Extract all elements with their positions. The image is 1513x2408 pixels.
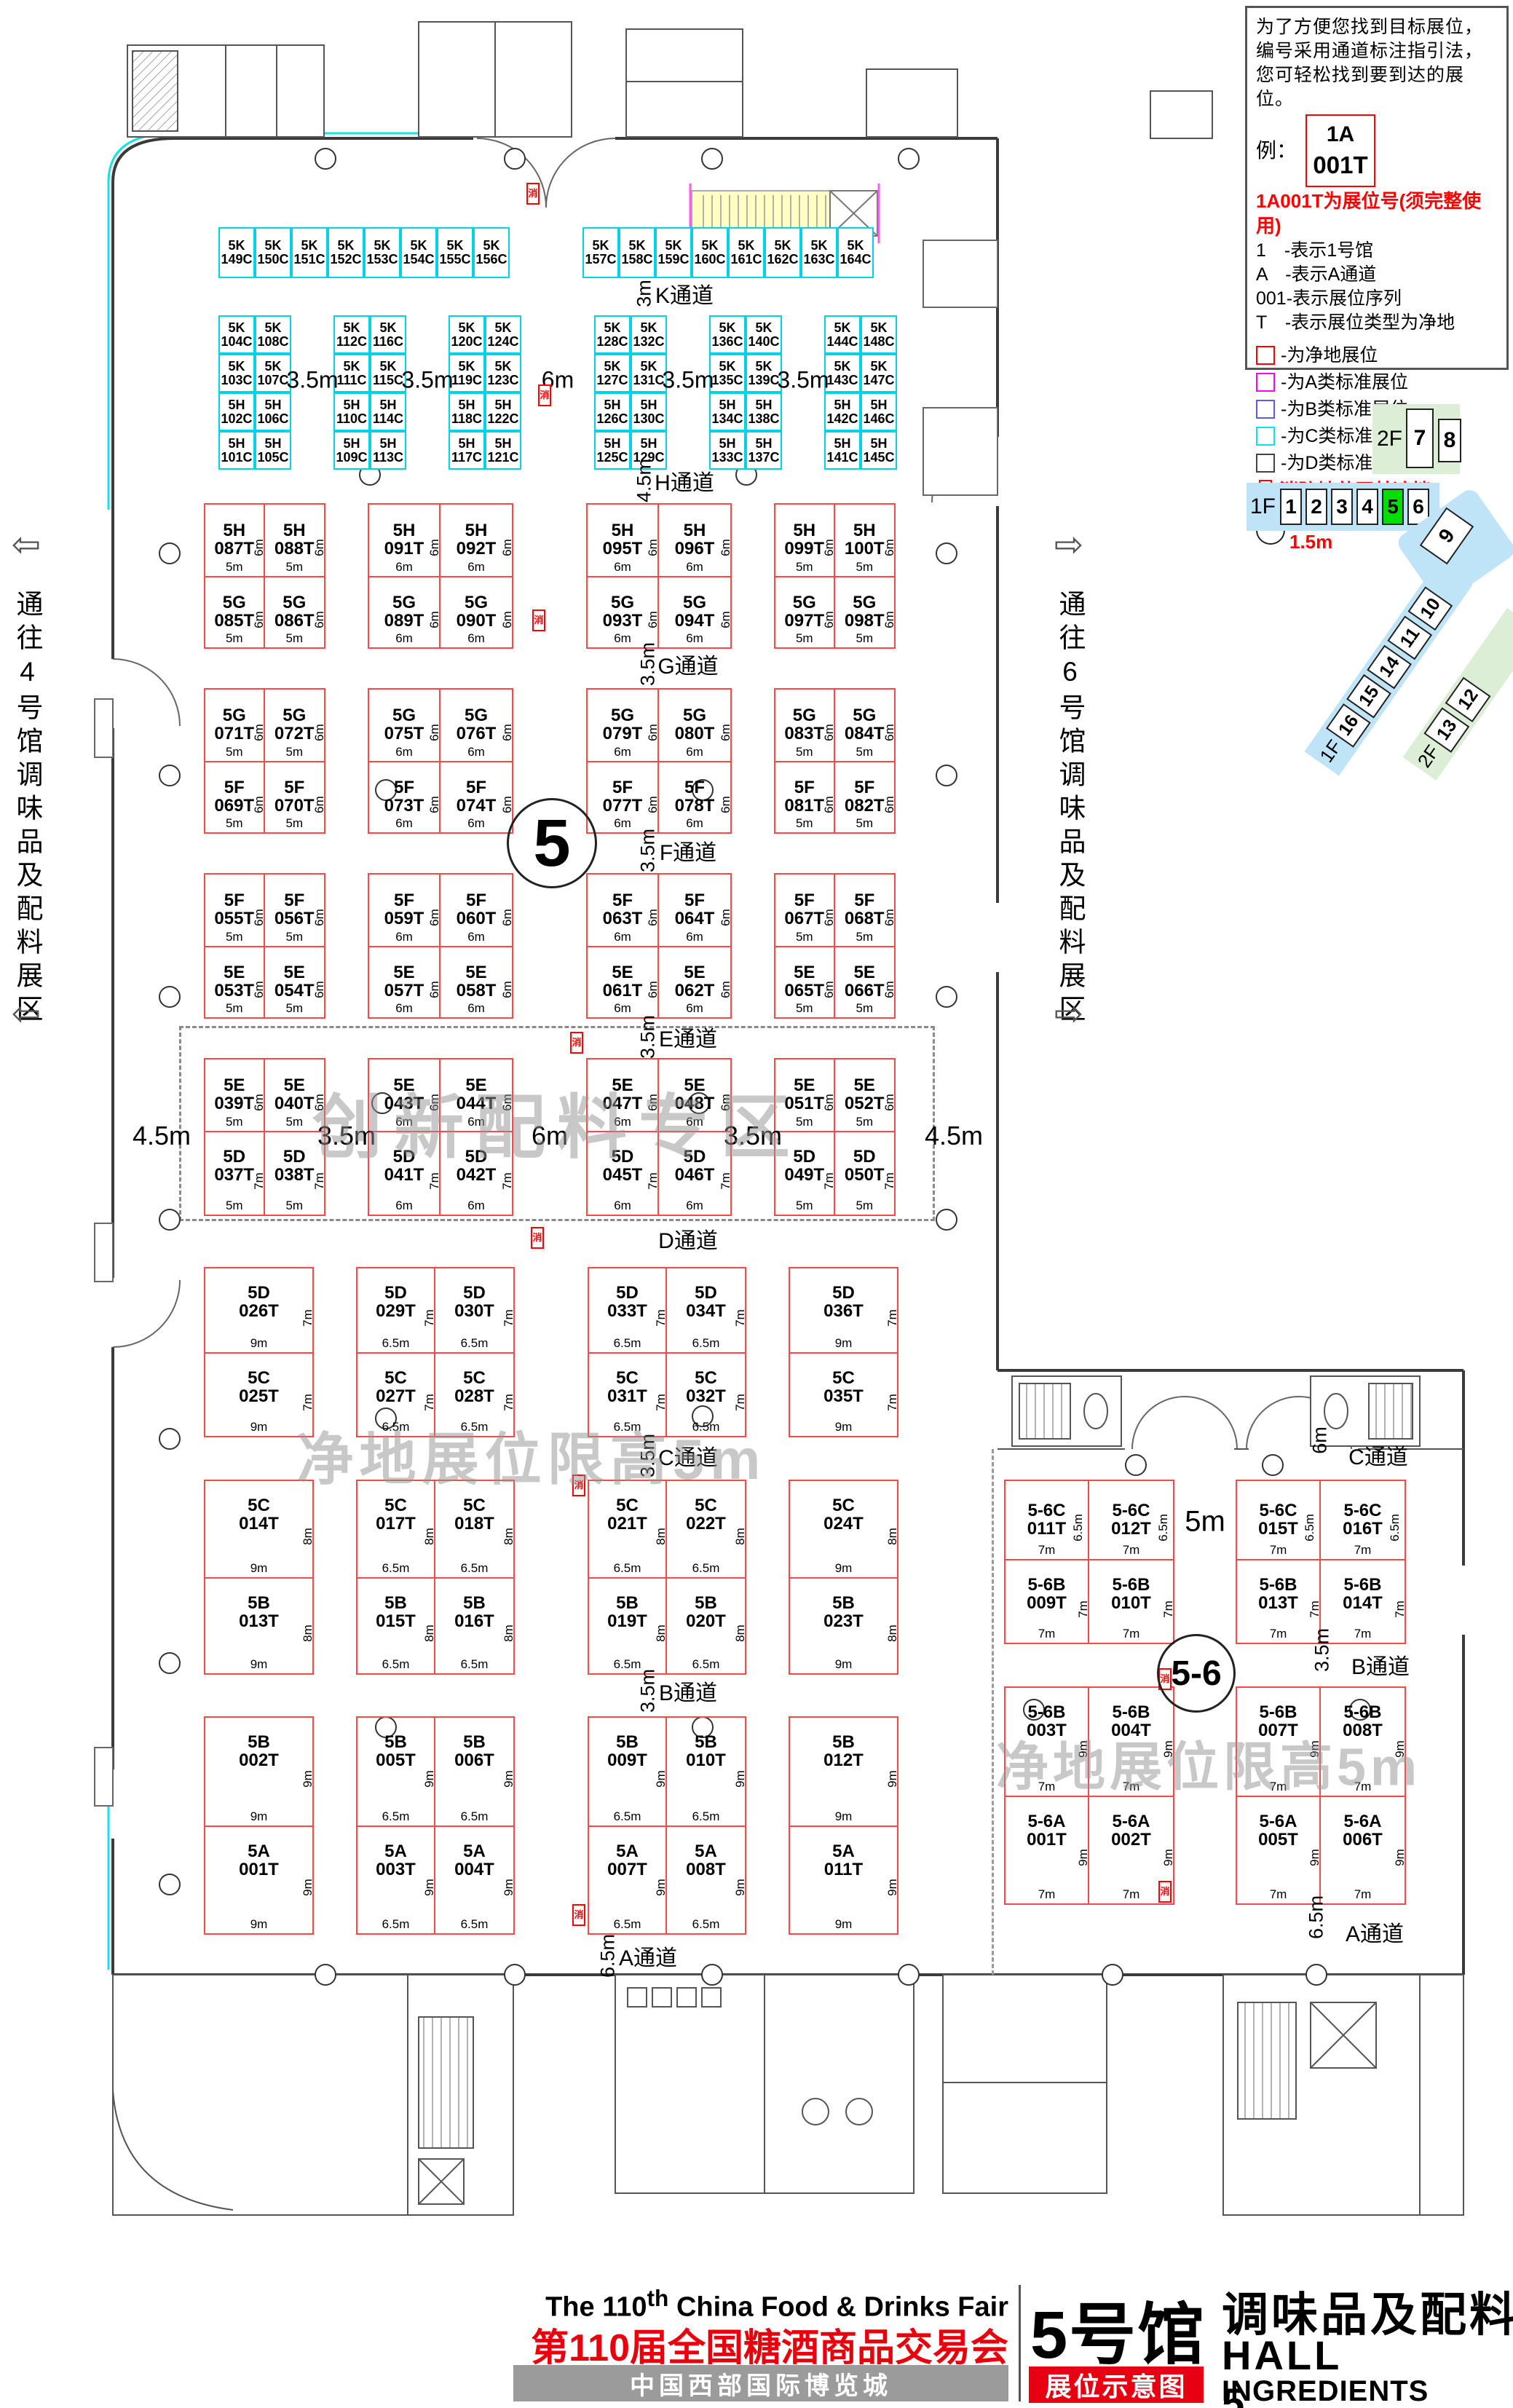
booth: 5F059T6m6m: [369, 875, 441, 947]
booth: 5G085T5m6m: [205, 577, 265, 647]
venue-bar: 中国西部国际博览城: [513, 2365, 1008, 2401]
booth-label: 5-6B014T: [1343, 1576, 1383, 1612]
booth-height-dim: 6.5m: [1303, 1514, 1317, 1541]
booth: 5D036T9m7m: [790, 1268, 897, 1354]
booth-label: 5A003T: [376, 1843, 416, 1879]
booth-number: 149C: [221, 253, 252, 267]
booth-height-dim: 6m: [882, 981, 897, 998]
booth-width-dim: 6m: [369, 1199, 439, 1213]
arrow-to-hall6-bottom-icon: ⇨: [1054, 993, 1083, 1034]
pillar-icon: [315, 1964, 336, 1986]
booth-label: 5H091T: [384, 522, 424, 558]
navigator-1f-strip-label: 1F: [1315, 735, 1346, 767]
booth: 5H095T6m6m: [588, 505, 659, 577]
booth-hall-code: 5K: [264, 239, 281, 253]
booth: 5F078T6m6m: [659, 762, 730, 832]
fire-hydrant-icon: 消: [526, 183, 540, 205]
pillar-icon: [1102, 1964, 1123, 1986]
booth-hall-code: 5K: [228, 239, 245, 253]
booth-number: 148C: [863, 335, 894, 349]
pillar-icon: [936, 986, 957, 1008]
booth-number: 127C: [596, 374, 628, 387]
booth-label: 5D033T: [607, 1284, 647, 1320]
booth: 5K153C: [364, 227, 400, 278]
booth-label: 5D037T: [214, 1148, 254, 1184]
booth-label: 5H088T: [274, 522, 315, 558]
booth-width-dim: 6.5m: [435, 1657, 513, 1672]
booth-height-dim: 6m: [312, 796, 327, 813]
aisle-label: C通道: [1348, 1439, 1408, 1471]
booth-label: 5-6C011T: [1027, 1502, 1066, 1538]
booth-hall-code: 5K: [665, 239, 682, 253]
booth-number: 150C: [257, 253, 288, 267]
booth-label: 5F070T: [274, 779, 315, 815]
booth-hall-code: 5K: [337, 239, 354, 253]
booth-hall-code: 5K: [604, 321, 620, 335]
booth-hall-code: 5K: [343, 360, 360, 374]
aisle-dim-label: 4.5m: [633, 459, 656, 502]
booth: 5D029T6.5m7m: [357, 1268, 435, 1354]
booth-height-dim: 6m: [882, 724, 897, 741]
booth: 5F064T6m6m: [659, 875, 730, 947]
booth-label: 5-6A001T: [1027, 1813, 1067, 1849]
booth: 5G071T5m6m: [205, 690, 265, 762]
booth-label: 5B023T: [823, 1595, 864, 1630]
booth-width-dim: 6.5m: [357, 1657, 434, 1672]
booth-number: 102C: [221, 412, 252, 426]
booth-label: 5G080T: [675, 707, 715, 743]
pillar-icon: [1125, 1454, 1147, 1476]
booth-width-dim: 5m: [775, 1199, 834, 1213]
booth-label: 5C017T: [376, 1497, 416, 1533]
booth-number: 156C: [475, 253, 507, 267]
booth-width-dim: 6.5m: [589, 1336, 665, 1351]
booth-number: 157C: [585, 253, 616, 267]
booth-hall-code: 5H: [719, 437, 735, 451]
booth-label: 5-6B010T: [1111, 1576, 1151, 1612]
booth: 5H137C: [746, 431, 782, 470]
aisle-label: H通道: [655, 465, 714, 497]
hall-navigator: 2F781F12345691F16151411102F1312: [1238, 397, 1513, 805]
booth-hall-code: 5K: [379, 321, 396, 335]
booth-label: 5E039T: [214, 1077, 254, 1113]
booth-height-dim: 6.5m: [1156, 1514, 1171, 1541]
booth: 5E039T5m6m: [205, 1059, 265, 1132]
booth: 5H091T6m6m: [369, 505, 441, 577]
booth: 5H130C: [631, 392, 667, 431]
aisle-dim-label: 3.5m: [637, 1015, 660, 1059]
booth-hall-code: 5H: [719, 398, 735, 412]
booth-label: 5B013T: [239, 1595, 279, 1630]
booth-width-dim: 5m: [205, 1115, 264, 1129]
booth-width-dim: 6m: [369, 930, 439, 944]
booth: 5-6C012T7m6.5m: [1089, 1481, 1173, 1560]
booth-width-dim: 6.5m: [435, 1561, 513, 1576]
booth-width-dim: 5m: [775, 560, 834, 575]
booth-height-dim: 6m: [882, 796, 897, 813]
aisle-dim-label: 6m: [1309, 1426, 1332, 1454]
booth-hall-code: 5K: [301, 239, 317, 253]
booth-hall-code: 5K: [483, 239, 499, 253]
fire-hydrant-icon: 消: [570, 1032, 583, 1054]
booth-label: 5E057T: [384, 964, 424, 1000]
booth-height-dim: 8m: [885, 1528, 900, 1545]
booth-label: 5F064T: [675, 892, 715, 928]
booth-width-dim: 5m: [835, 1115, 895, 1129]
booth-group: 5G075T6m6m5G076T6m6m5F073T6m6m5F074T6m6m: [368, 688, 513, 834]
booth: 5E061T6m6m: [588, 947, 659, 1017]
booth: 5H113C: [370, 431, 406, 470]
booth-label: 5G085T: [214, 594, 254, 630]
booth: 5F081T5m6m: [775, 762, 835, 832]
booth-width-dim: 7m: [1089, 1627, 1173, 1641]
booth: 5A003T6.5m9m: [357, 1827, 435, 1933]
booth-height-dim: 8m: [301, 1625, 315, 1642]
booth-number: 105C: [257, 451, 288, 465]
booth-width-dim: 6m: [659, 560, 730, 575]
booth-width-dim: 5m: [775, 631, 834, 646]
booth-width-dim: 6m: [369, 816, 439, 831]
booth-label: 5-6C016T: [1343, 1502, 1383, 1538]
booth: 5H109C: [333, 431, 370, 470]
booth-width-dim: 5m: [835, 816, 895, 831]
booth: 5D037T5m7m: [205, 1132, 265, 1215]
booth-group: 5H091T6m6m5H092T6m6m5G089T6m6m5G090T6m6m: [368, 503, 513, 649]
gap-dim-label: 3.5m: [401, 367, 453, 394]
booth: 5-6B010T7m7m: [1089, 1560, 1173, 1643]
booth-number: 135C: [711, 374, 743, 387]
booth-label: 5C018T: [454, 1497, 494, 1533]
plan-badge: 展位示意图: [1029, 2366, 1204, 2403]
booth-hall-code: 5K: [264, 321, 281, 335]
booth-width-dim: 7m: [1006, 1627, 1088, 1641]
booth: 5E062T6m6m: [659, 947, 730, 1017]
booth-label: 5D034T: [686, 1284, 726, 1320]
booth-number: 152C: [330, 253, 361, 267]
booth: 5-6A001T7m9m: [1006, 1797, 1089, 1903]
booth-label: 5H087T: [214, 522, 254, 558]
booth-label: 5D030T: [454, 1284, 494, 1320]
aisle-label: A通道: [1346, 1916, 1404, 1948]
booth: 5K148C: [861, 315, 897, 354]
example-booth-hall: 1A: [1327, 120, 1354, 149]
booth-label: 5E061T: [603, 964, 643, 1000]
booth-height-dim: 6m: [719, 909, 733, 926]
booth: 5F073T6m6m: [369, 762, 441, 832]
booth-hall-code: 5K: [870, 360, 887, 374]
booth: 5E058T6m6m: [441, 947, 512, 1017]
booth-number: 132C: [633, 335, 664, 349]
booth-label: 5B015T: [376, 1595, 416, 1630]
booth-hall-code: 5K: [774, 239, 791, 253]
booth-number: 136C: [711, 335, 743, 349]
hall-box-2: 2: [1305, 489, 1327, 525]
navigator-2f-label: 2F: [1377, 427, 1402, 451]
booth-height-dim: 9m: [1161, 1849, 1176, 1866]
booth-hall-code: 5H: [755, 398, 772, 412]
booth: 5B020T6.5m8m: [667, 1579, 745, 1673]
zone-side-dim: 4.5m: [925, 1121, 983, 1151]
booth-width-dim: 6m: [441, 560, 512, 575]
booth-label: 5-6A002T: [1111, 1813, 1151, 1849]
booth-width-dim: 5m: [835, 930, 895, 944]
booth-label: 5G093T: [603, 594, 643, 630]
booth-label: 5G090T: [457, 594, 497, 630]
booth-label: 5F060T: [457, 892, 497, 928]
booth-number: 126C: [596, 412, 628, 426]
booth-height-dim: 6m: [500, 724, 515, 741]
booth: 5E065T5m6m: [775, 947, 835, 1017]
booth-label: 5-6A005T: [1258, 1813, 1298, 1849]
booth-width-dim: 6m: [659, 745, 730, 759]
booth: 5K158C: [619, 227, 655, 278]
booth-label: 5G098T: [845, 594, 885, 630]
booth-label: 5C022T: [686, 1497, 726, 1533]
booth-hall-code: 5H: [834, 437, 850, 451]
booth-label: 5C024T: [823, 1497, 864, 1533]
booth-number: 130C: [633, 412, 664, 426]
booth: 5D030T6.5m7m: [435, 1268, 513, 1354]
pillar-icon: [701, 1964, 723, 1986]
booth-group: 5C014T9m8m5B013T9m8m: [204, 1480, 314, 1675]
booth: 5-6A006T7m9m: [1321, 1797, 1405, 1903]
booth-label: 5E054T: [274, 964, 315, 1000]
booth-hall-code: 5K: [458, 321, 475, 335]
booth-label: 5H096T: [675, 522, 715, 558]
booth-group: 5C017T6.5m8m5C018T6.5m8m5B015T6.5m8m5B01…: [356, 1480, 515, 1675]
booth: 5K104C: [218, 315, 255, 354]
booth-width-dim: 6.5m: [589, 1561, 665, 1576]
booth-label: 5E052T: [845, 1077, 885, 1113]
aisle-dim-label: 3.5m: [1311, 1628, 1334, 1672]
booth: 5K155C: [437, 227, 473, 278]
booth-group: 5B012T9m9m5A011T9m9m: [789, 1716, 898, 1935]
booth-number: 142C: [826, 412, 858, 426]
booth: 5C022T6.5m8m: [667, 1481, 745, 1579]
booth-label: 5C031T: [607, 1370, 647, 1405]
booth-label: 5A007T: [607, 1843, 647, 1879]
booth-width-dim: 6m: [659, 1001, 730, 1016]
booth: 5F060T6m6m: [441, 875, 512, 947]
booth-number: 158C: [621, 253, 652, 267]
booth-width-dim: 6m: [588, 560, 657, 575]
booth-width-dim: 6.5m: [589, 1809, 665, 1824]
booth-number: 155C: [439, 253, 470, 267]
booth: 5-6C015T7m6.5m: [1237, 1481, 1321, 1560]
booth-height-dim: 6m: [500, 796, 515, 813]
booth-width-dim: 5m: [205, 631, 264, 646]
booth-label: 5D036T: [823, 1284, 864, 1320]
booth-width-dim: 6.5m: [357, 1561, 434, 1576]
booth-number: 128C: [596, 335, 628, 349]
booth: 5G097T5m6m: [775, 577, 835, 647]
booth-number: 122C: [487, 412, 518, 426]
booth-label: 5G071T: [214, 707, 254, 743]
booth-width-dim: 6.5m: [667, 1657, 745, 1672]
booth-width-dim: 9m: [790, 1917, 897, 1932]
booth: 5C017T6.5m8m: [357, 1481, 435, 1579]
booth-width-dim: 5m: [775, 1001, 834, 1016]
booth-height-dim: 6m: [882, 611, 897, 628]
booth: 5D026T9m7m: [205, 1268, 312, 1354]
arrow-to-hall6-top-icon: ⇨: [1054, 524, 1083, 565]
aisle-dim-label: 6.5m: [597, 1934, 620, 1978]
booth: 5K112C: [333, 315, 370, 354]
booth-height-dim: 6.5m: [1388, 1514, 1402, 1541]
booth-width-dim: 5m: [265, 745, 325, 759]
booth: 5K128C: [594, 315, 631, 354]
booth-height-dim: 6m: [719, 981, 733, 998]
legend-type-row: -为A类标准展位: [1256, 369, 1498, 396]
booth-width-dim: 7m: [1006, 1543, 1088, 1558]
booth-hall-code: 5K: [264, 360, 281, 374]
booth-height-dim: 6.5m: [1071, 1514, 1086, 1541]
booth-height-dim: 6m: [719, 724, 733, 741]
booth-hall-code: 5H: [604, 437, 620, 451]
booth-width-dim: 7m: [1321, 1887, 1405, 1902]
booth: 5F068T5m6m: [835, 875, 895, 947]
booth-group: 5C021T6.5m8m5C022T6.5m8m5B019T6.5m8m5B02…: [588, 1480, 746, 1675]
pillar-icon: [159, 1428, 181, 1450]
booth: 5K161C: [728, 227, 765, 278]
fire-hydrant-icon: 消: [572, 1904, 585, 1926]
booth-label: 5F074T: [457, 779, 497, 815]
booth-width-dim: 6m: [441, 930, 512, 944]
booth-height-dim: 9m: [502, 1879, 516, 1896]
booth-number: 118C: [451, 412, 482, 426]
booth-height-dim: 9m: [885, 1879, 900, 1896]
booth-label: 5C025T: [239, 1370, 279, 1405]
booth-label: 5E065T: [784, 964, 824, 1000]
booth-number: 154C: [403, 253, 434, 267]
booth-group: 5G071T5m6m5G072T5m6m5F069T5m6m5F070T5m6m: [204, 688, 325, 834]
booth-number: 160C: [694, 253, 725, 267]
booth: 5H102C: [218, 392, 255, 431]
booth-label: 5B019T: [607, 1595, 647, 1630]
booth-width-dim: 5m: [205, 745, 264, 759]
booth-width-dim: 7m: [1237, 1543, 1319, 1558]
booth-label: 5H095T: [603, 522, 643, 558]
booth-hall-code: 5H: [379, 437, 396, 451]
booth-number: 146C: [863, 412, 894, 426]
booth: 5E053T5m6m: [205, 947, 265, 1017]
booth-height-dim: 8m: [733, 1625, 748, 1642]
booth-width-dim: 6m: [659, 1199, 730, 1213]
booth-height-dim: 8m: [885, 1625, 900, 1642]
booth-hall-code: 5K: [640, 321, 657, 335]
booth-height-dim: 9m: [502, 1770, 516, 1788]
booth-hall-code: 5H: [834, 398, 850, 412]
booth: 5H106C: [255, 392, 291, 431]
legend-code-line: 1 -表示1号馆: [1256, 239, 1498, 263]
side-text-to-hall4: 通往4号馆调味品及配料展区: [7, 590, 47, 1028]
booth-width-dim: 7m: [1089, 1543, 1173, 1558]
booth-group: 5F055T5m6m5F056T5m6m5E053T5m6m5E054T5m6m: [204, 873, 325, 1019]
booth-hall-code: 5K: [834, 321, 850, 335]
booth-width-dim: 9m: [205, 1336, 312, 1351]
booth: 5K144C: [824, 315, 861, 354]
booth-width-dim: 9m: [205, 1917, 312, 1932]
aisle-label: F通道: [660, 834, 716, 867]
booth-label: 5G086T: [274, 594, 315, 630]
booth-label: 5F068T: [845, 892, 885, 928]
booth: 5F069T5m6m: [205, 762, 265, 832]
booth-label: 5B002T: [239, 1734, 279, 1769]
booth-label: 5B020T: [686, 1595, 726, 1630]
booth: 5G090T6m6m: [441, 577, 512, 647]
booth: 5H110C: [333, 392, 370, 431]
hall-box-1: 1: [1280, 489, 1302, 525]
booth: 5K147C: [861, 354, 897, 392]
booth-height-dim: 9m: [301, 1770, 315, 1788]
aisle-label: G通道: [657, 648, 718, 680]
booth-width-dim: 6.5m: [667, 1809, 745, 1824]
watermark-height-limit-left: 净地展位限高5m: [297, 1414, 767, 1496]
booth-height-dim: 7m: [1393, 1600, 1407, 1618]
booth-hall-code: 5H: [870, 437, 887, 451]
booth: 5G083T5m6m: [775, 690, 835, 762]
booth-group: 5D033T6.5m7m5D034T6.5m7m5C031T6.5m7m5C03…: [588, 1267, 746, 1437]
booth: 5H101C: [218, 431, 255, 470]
booth-label: 5F055T: [214, 892, 254, 928]
booth: 5H146C: [861, 392, 897, 431]
booth-label: 5C021T: [607, 1497, 647, 1533]
booth-label: 5E058T: [457, 964, 497, 1000]
booth-width-dim: 6m: [369, 745, 439, 759]
booth: 5K159C: [655, 227, 692, 278]
booth-height-dim: 9m: [733, 1879, 748, 1896]
pillar-icon: [159, 1209, 181, 1231]
booth-type-swatch: [1256, 346, 1275, 365]
booth-number: 162C: [767, 253, 798, 267]
booth: 5H092T6m6m: [441, 505, 512, 577]
booth-hall-code: 5K: [755, 321, 772, 335]
booth-group: 5-6C011T7m6.5m5-6C012T7m6.5m5-6B009T7m7m…: [1004, 1480, 1174, 1644]
hall-5-marker: 5: [507, 798, 597, 888]
booth: 5-6B009T7m7m: [1006, 1560, 1089, 1643]
booth: 5A011T9m9m: [790, 1827, 897, 1933]
booth-number: 139C: [748, 374, 779, 387]
booth-label: 5H100T: [845, 522, 885, 558]
booth-hall-code: 5K: [640, 360, 657, 374]
gap-dim-label: 3.5m: [662, 367, 714, 394]
booth: 5B012T9m9m: [790, 1718, 897, 1827]
title-divider: [1019, 2285, 1021, 2401]
booth-label: 5A008T: [686, 1843, 726, 1879]
booth-label: 5G083T: [784, 707, 824, 743]
booth: 5F077T6m6m: [588, 762, 659, 832]
booth-height-dim: 6m: [500, 539, 515, 556]
booth-number: 147C: [863, 374, 894, 387]
booth: 5-6B013T7m7m: [1237, 1560, 1321, 1643]
booth-height-dim: 9m: [1393, 1849, 1407, 1866]
booth-label: 5E053T: [214, 964, 254, 1000]
booth-height-dim: 6m: [500, 981, 515, 998]
booth-group: 5H095T6m6m5H096T6m6m5G093T6m6m5G094T6m6m: [586, 503, 732, 649]
pillar-icon: [159, 765, 181, 786]
booth-number: 113C: [373, 451, 403, 465]
booth: 5D050T5m7m: [835, 1132, 895, 1215]
booth: 5H118C: [449, 392, 485, 431]
booth-width-dim: 5m: [835, 631, 895, 646]
legend-panel: 为了方便您找到目标展位，编号采用通道标注指引法，您可轻松找到要到达的展位。 例：…: [1245, 6, 1509, 370]
legend-code-line: 001-表示展位序列: [1256, 287, 1498, 311]
booth: 5B010T6.5m9m: [667, 1718, 745, 1827]
pillar-icon: [159, 1652, 181, 1674]
booth: 5G076T6m6m: [441, 690, 512, 762]
booth: 5G079T6m6m: [588, 690, 659, 762]
booth-width-dim: 6.5m: [357, 1336, 434, 1351]
